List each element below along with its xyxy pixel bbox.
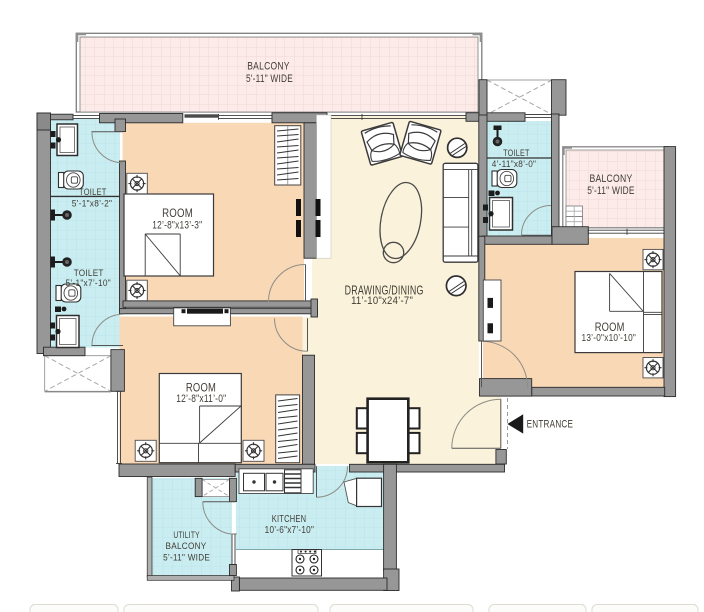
svg-text:5'-11" WIDE: 5'-11" WIDE [246,73,293,85]
svg-text:12’-8"x11’-0": 12’-8"x11’-0" [176,393,226,405]
svg-text:BALCONY: BALCONY [247,61,290,73]
svg-text:TOILET: TOILET [503,147,530,158]
svg-text:5’-1"x8’-2": 5’-1"x8’-2" [72,199,113,210]
svg-text:KITCHEN: KITCHEN [272,514,307,525]
svg-text:10’-6"x7’-10": 10’-6"x7’-10" [265,525,315,536]
svg-text:4’-11"x8’-0": 4’-11"x8’-0" [492,159,537,169]
svg-text:5’-11" WIDE: 5’-11" WIDE [163,551,210,562]
svg-text:ROOM: ROOM [595,320,625,334]
svg-text:11’-10"x24’-7": 11’-10"x24’-7" [351,295,413,307]
svg-text:5'-11" WIDE: 5'-11" WIDE [587,185,635,197]
svg-text:UTILITY: UTILITY [173,529,200,540]
svg-text:13’-0"x10’-10": 13’-0"x10’-10" [582,333,637,344]
svg-text:BALCONY: BALCONY [590,173,633,185]
svg-text:TOILET: TOILET [79,187,107,198]
svg-text:12’-8"x13’-3": 12’-8"x13’-3" [152,219,202,231]
svg-text:BALCONY: BALCONY [166,540,207,551]
svg-text:ROOM: ROOM [162,206,193,220]
svg-text:ENTRANCE: ENTRANCE [527,419,574,431]
svg-text:5’-1"x7’-10": 5’-1"x7’-10" [65,278,111,289]
